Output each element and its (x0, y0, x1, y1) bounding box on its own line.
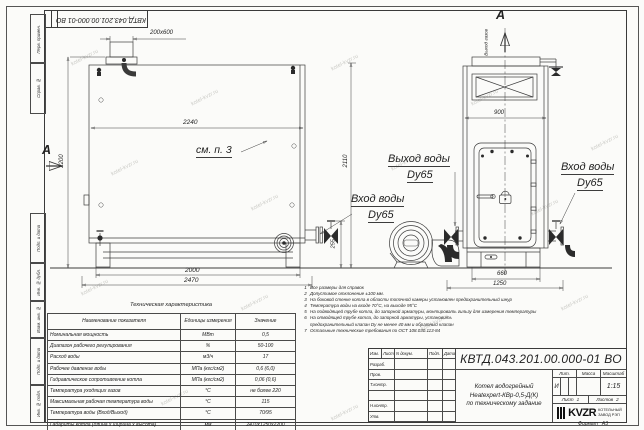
notes-list: 1Все размеры для справок 2Допустимое отк… (301, 285, 486, 334)
row-unit: м3/ч (181, 352, 236, 363)
logo-stripes-icon (557, 407, 566, 419)
dim-base-span: 2000 (185, 268, 199, 275)
dim-front-total-width: 1250 (493, 281, 506, 287)
sheet-value: 1 (577, 397, 580, 402)
sign-row-label: Разраб. (369, 359, 395, 369)
format-value: А3 (602, 422, 608, 427)
rev-col: Дата (443, 349, 456, 359)
dim-inner-width: 2240 (183, 120, 197, 127)
row-name: Расход воды (48, 352, 181, 363)
row-value: 0,5 (236, 330, 296, 341)
row-name: Гидравлическое сопротивление котла (48, 374, 181, 385)
rev-col: Изм. (369, 349, 382, 359)
row-unit: % (181, 341, 236, 352)
tech-row: Температура воды (Вход/Выход)°С70/95 (48, 408, 296, 419)
doc-number: КВТД.043.201.00.000-01 ВО (456, 349, 626, 370)
mass-value (577, 378, 601, 396)
row-name: Рабочее давление воды (48, 363, 181, 374)
product-line: Heatexpert-КВр-0,5-Д(К) (470, 392, 538, 400)
tech-col-name: Наименование показателя (48, 314, 181, 330)
lit-cell (561, 378, 569, 396)
water-inlet-right-label: Вход воды (561, 162, 614, 175)
row-value: 115 (236, 397, 296, 408)
dim-front-base-width: 660 (497, 271, 507, 277)
sheet-cell: Лист 1 (553, 396, 589, 404)
drawing-sheet: kotel-kvzr.ru kotel-kvzr.ru kotel-kvzr.r… (0, 0, 644, 430)
sheets-cell: Листов 2 (589, 396, 626, 404)
sign-row-label: Т.контр. (369, 380, 395, 390)
scale-label: Масштаб (601, 370, 626, 378)
row-name: Габариты котла (длина х ширина х высота) (48, 419, 181, 430)
dim-flange-height: 255 (331, 231, 337, 257)
lit-cell (569, 378, 577, 396)
row-value: 17 (236, 352, 296, 363)
tech-row: Температура уходящих газов°Сне более 220 (48, 385, 296, 396)
row-unit: °С (181, 408, 236, 419)
tech-row: Диапазон рабочего регулирования%50-100 (48, 341, 296, 352)
logo-wordmark: KVZR (568, 407, 596, 419)
water-inlet-left-label: Вход воды (351, 194, 404, 207)
row-name: Диапазон рабочего регулирования (48, 341, 181, 352)
row-value: 2470х1250х2200 (236, 419, 296, 430)
sheet-label: Лист (562, 397, 574, 402)
rev-col: Подп. (428, 349, 443, 359)
company-logo-cell: KVZR КОТЕЛЬНЫЙ ЗАВОД РЭП (553, 404, 626, 422)
lit-value: И (553, 378, 561, 396)
see-note-label: см. п. 3 (196, 145, 232, 158)
logo-caption: КОТЕЛЬНЫЙ ЗАВОД РЭП (598, 408, 622, 417)
front-view (444, 28, 575, 274)
row-value: 0,6 (6,0) (236, 363, 296, 374)
sheets-label: Листов (596, 397, 613, 402)
row-name: Номинальная мощность (48, 330, 181, 341)
revision-grid: Изм. Лист N докум. Подп. Дата Разраб. Пр… (369, 349, 456, 422)
tech-row: Рабочее давление водыМПа (кгс/см2)0,6 (6… (48, 363, 296, 374)
row-value: не более 220 (236, 385, 296, 396)
tech-table: Наименование показателя Единицы измерени… (47, 313, 296, 430)
format-note: Формат А3 (578, 422, 608, 427)
row-name: Максимальная рабочая температура воды (48, 397, 181, 408)
tech-col-unit: Единицы измерения (181, 314, 236, 330)
lit-label: Лит. (553, 370, 577, 378)
note-item: 7Остальные технические требования по ОСТ… (301, 328, 486, 334)
tech-row: Максимальная рабочая температура воды°С1… (48, 397, 296, 408)
product-name: Котел водогрейный Heatexpert-КВр-0,5-Д(К… (456, 370, 553, 422)
sign-row-label (369, 391, 395, 401)
dim-length-total: 2470 (184, 278, 198, 285)
row-unit: °С (181, 385, 236, 396)
scale-value: 1:15 (601, 378, 626, 396)
water-inlet-right-dn: Dy65 (577, 178, 603, 191)
note-text: Остальные технические требования по ОСТ … (310, 328, 440, 334)
sign-row-label: Пров. (369, 370, 395, 380)
rev-col: N докум. (395, 349, 428, 359)
tech-row: Номинальная мощностьМВт0,5 (48, 330, 296, 341)
row-unit: мм (181, 419, 236, 430)
side-view-dimensions (46, 36, 356, 288)
section-letter-left: А (42, 144, 51, 157)
row-name: Температура воды (Вход/Выход) (48, 408, 181, 419)
dim-height-total: 2200 (59, 146, 65, 176)
water-outlet-label: Выход воды (388, 154, 450, 167)
format-label: Формат (578, 422, 598, 427)
row-value: 70/95 (236, 408, 296, 419)
tech-row: Габариты котла (длина х ширина х высота)… (48, 419, 296, 430)
water-outlet-dn: Dy65 (407, 170, 433, 183)
row-unit: МВт (181, 330, 236, 341)
sign-row-label: Утв. (369, 412, 395, 422)
draft-fan (390, 222, 460, 269)
sign-row-label: Н.контр. (369, 401, 395, 411)
row-name: Температура уходящих газов (48, 385, 181, 396)
title-block: Изм. Лист N докум. Подп. Дата Разраб. Пр… (368, 348, 627, 423)
product-line: Котел водогрейный (475, 383, 534, 391)
dim-height-front: 2110 (343, 146, 349, 176)
note-num: 7 (301, 328, 310, 334)
logo-caption-line: ЗАВОД РЭП (598, 413, 622, 418)
tech-table-title: Техническая характеристика (47, 303, 295, 309)
rev-col: Лист (382, 349, 395, 359)
section-letter-top: А (496, 9, 505, 22)
dim-front-top-width: 900 (494, 110, 504, 116)
row-unit: °С (181, 397, 236, 408)
row-unit: МПа (кгс/см2) (181, 374, 236, 385)
tech-row: Расход водым3/ч17 (48, 352, 296, 363)
dim-chimney: 200x600 (150, 30, 173, 36)
product-line: по техническому задание (466, 400, 541, 408)
gas-outlet-label: Выход газов (485, 19, 490, 65)
tech-col-value: Значение (236, 314, 296, 330)
water-inlet-left-dn: Dy65 (368, 210, 394, 223)
row-unit: МПа (кгс/см2) (181, 363, 236, 374)
tech-row: Гидравлическое сопротивление котлаМПа (к… (48, 374, 296, 385)
tech-table-header-row: Наименование показателя Единицы измерени… (48, 314, 296, 330)
mass-label: Масса (577, 370, 601, 378)
row-value: 50-100 (236, 341, 296, 352)
row-value: 0,06 (0,6) (236, 374, 296, 385)
sheets-value: 2 (616, 397, 619, 402)
